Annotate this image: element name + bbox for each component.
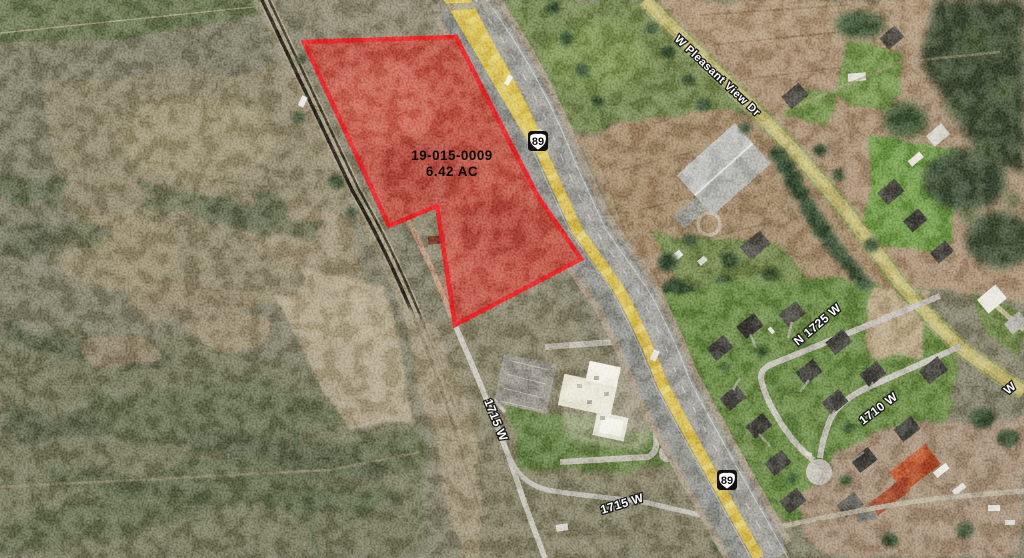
svg-text:6.42 AC: 6.42 AC xyxy=(426,164,478,179)
svg-text:89: 89 xyxy=(721,475,733,487)
svg-text:89: 89 xyxy=(532,136,544,148)
svg-text:19-015-0009: 19-015-0009 xyxy=(411,148,492,163)
